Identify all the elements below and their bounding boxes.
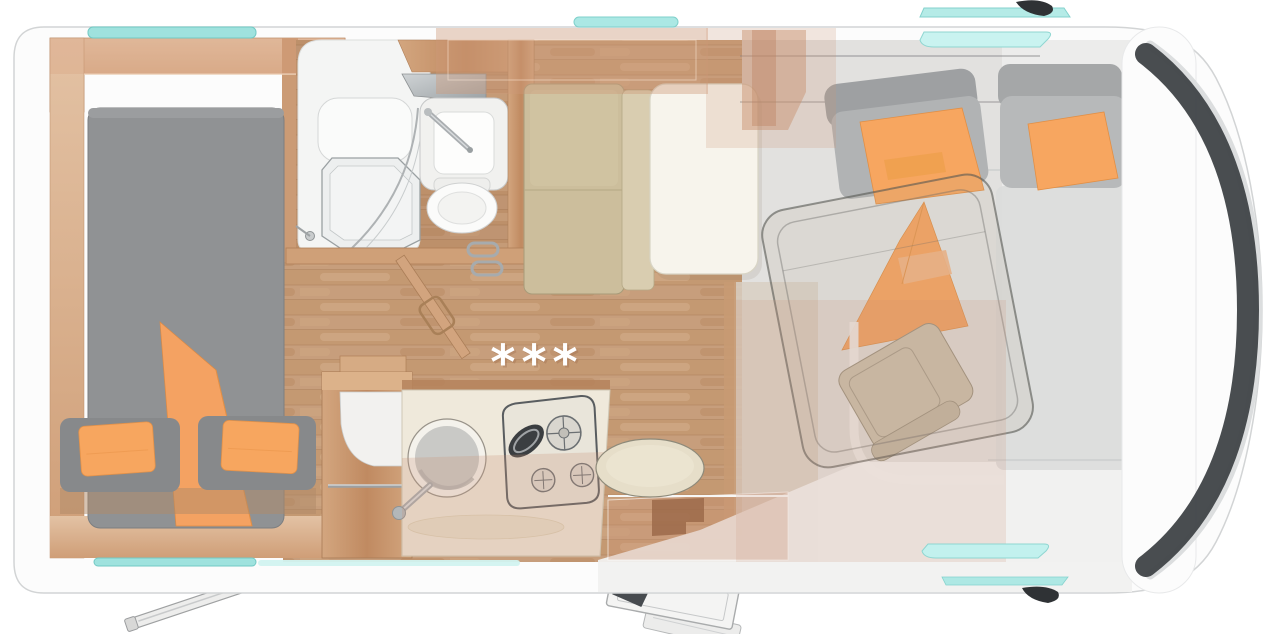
- cab-front: [1122, 27, 1258, 593]
- cab-seat-right-cushion: [1028, 112, 1118, 190]
- roof-window-mid: [574, 17, 678, 27]
- bed-pillow-right: [221, 420, 300, 474]
- wardrobe: [322, 356, 412, 558]
- cab-window-bottom: [922, 544, 1049, 558]
- bed-pillow-left: [78, 421, 155, 476]
- bottom-window-strip: [258, 560, 520, 566]
- heating-mark: *** ***: [490, 335, 585, 393]
- floorplan-canvas: *** ***: [0, 0, 1280, 634]
- cab-roof-strip-bottom: [942, 577, 1068, 585]
- heating-stars-text: ***: [490, 335, 583, 391]
- shower-seat: [318, 98, 412, 162]
- kitchen: [393, 380, 611, 556]
- rear-bottom-window: [94, 558, 256, 566]
- roof-window-rear: [88, 27, 256, 38]
- cab-window-top: [920, 32, 1051, 47]
